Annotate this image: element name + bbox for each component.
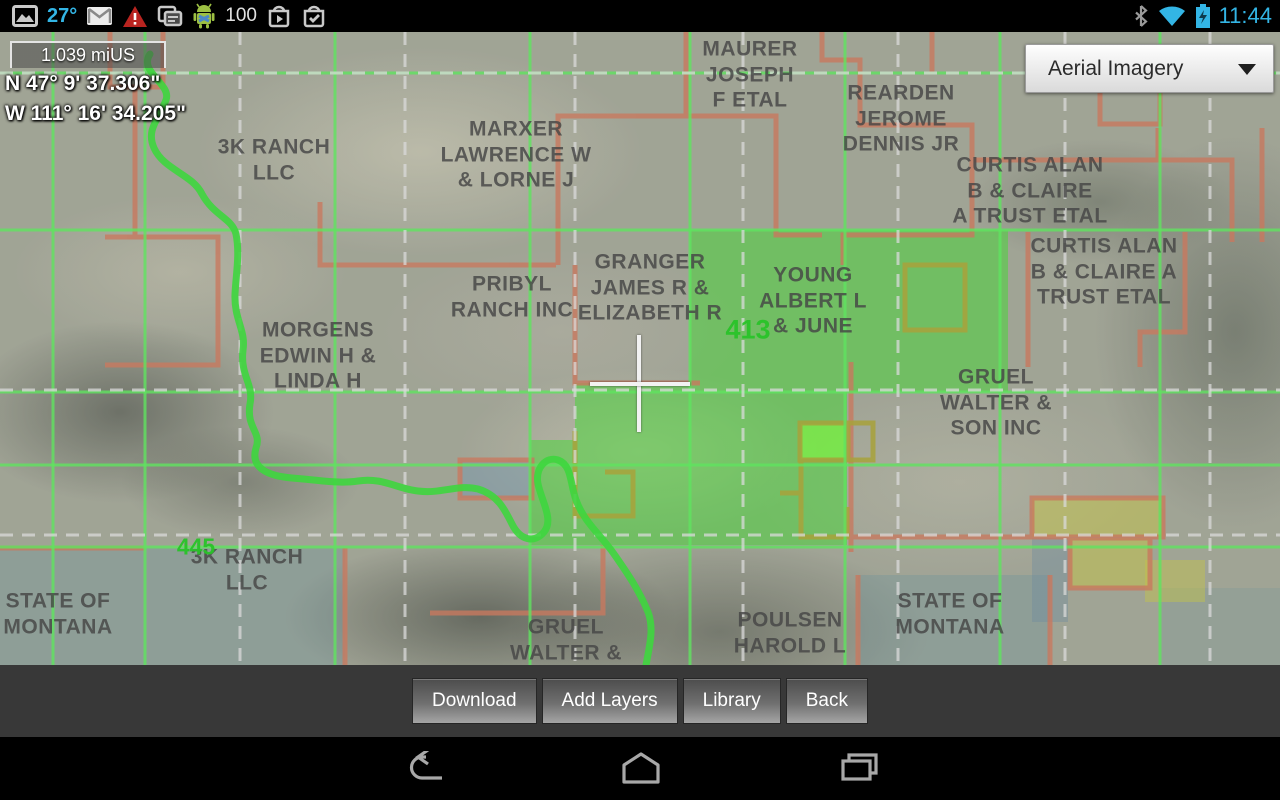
action-toolbar: Download Add Layers Library Back (0, 665, 1280, 737)
clock: 11:44 (1219, 3, 1272, 29)
parcel-label: GRUEL WALTER & (510, 614, 622, 665)
warning-icon (122, 5, 148, 28)
parcel-label: MAURER JOSEPH F ETAL (702, 37, 797, 114)
back-icon[interactable] (404, 751, 448, 785)
parcel-label: MORGENS EDWIN H & LINDA H (260, 318, 377, 395)
battery-percent-notification: 100 (225, 5, 257, 27)
play-store-icon (266, 4, 292, 28)
parcel-fill-yellow-3 (1145, 560, 1205, 602)
parcel-label: STATE OF MONTANA (895, 588, 1004, 639)
section-number: 445 (177, 534, 215, 561)
wifi-icon (1157, 4, 1187, 28)
parcel-label: PRIBYL RANCH INC (451, 271, 573, 322)
latitude-readout: N 47° 9' 37.306" (5, 72, 160, 96)
checklist-icon (301, 4, 327, 28)
crosshair-icon (590, 382, 690, 386)
back-button[interactable]: Back (786, 678, 868, 724)
gallery-icon (12, 5, 38, 27)
bluetooth-icon (1133, 4, 1149, 28)
parcel-label: REARDEN JEROME DENNIS JR (843, 81, 960, 158)
layer-selector-value: Aerial Imagery (1048, 57, 1183, 81)
highlighted-section-bright (801, 424, 846, 459)
add-layers-button[interactable]: Add Layers (542, 678, 678, 724)
download-button[interactable]: Download (412, 678, 537, 724)
parcel-label: STATE OF MONTANA (3, 588, 112, 639)
scale-bar: 1.039 miUS (10, 41, 166, 68)
parcel-label: YOUNG ALBERT L & JUNE (759, 263, 867, 340)
battery-charging-icon (1195, 3, 1211, 29)
parcel-label: GRANGER JAMES R & ELIZABETH R (578, 250, 722, 327)
recents-icon[interactable] (838, 751, 880, 785)
home-icon[interactable] (620, 751, 662, 785)
map-canvas[interactable]: MAURER JOSEPH F ETAL REARDEN JEROME DENN… (0, 32, 1280, 665)
android-icon (192, 3, 216, 29)
layer-selector-dropdown[interactable]: Aerial Imagery (1025, 44, 1274, 93)
parcel-label: CURTIS ALAN B & CLAIRE A TRUST ETAL (1030, 234, 1177, 311)
android-nav-bar (0, 737, 1280, 800)
android-status-bar[interactable]: 27° 100 (0, 0, 1280, 32)
parcel-label: POULSEN HAROLD L (734, 607, 847, 658)
longitude-readout: W 111° 16' 34.205" (5, 102, 186, 126)
system-status-icons: 11:44 (1133, 0, 1272, 32)
library-button[interactable]: Library (683, 678, 781, 724)
parcel-label: 3K RANCH LLC (218, 134, 331, 185)
parcel-label: GRUEL WALTER & SON INC (940, 365, 1052, 442)
gmail-icon (86, 6, 113, 26)
parcel-label: MARXER LAWRENCE W & LORNE J (441, 117, 592, 194)
notification-icons: 27° 100 (0, 3, 327, 29)
temperature-notification: 27° (47, 5, 77, 28)
copy-icon (157, 5, 183, 27)
parcel-label: CURTIS ALAN B & CLAIRE A TRUST ETAL (952, 153, 1107, 230)
section-number: 413 (725, 315, 770, 346)
chevron-down-icon (1238, 64, 1256, 75)
parcel-fill-yellow-1 (1032, 498, 1163, 537)
